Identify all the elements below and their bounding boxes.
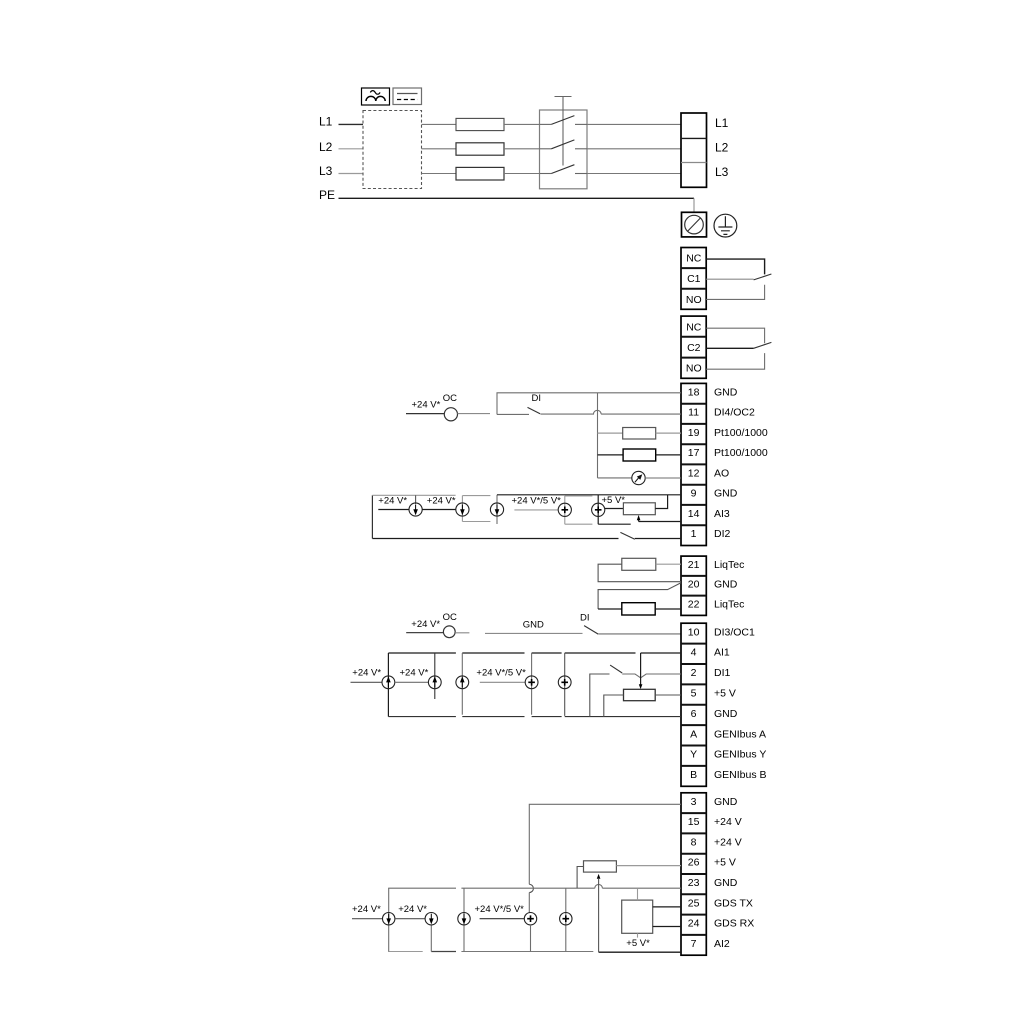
svg-text:AO: AO [714,467,729,479]
svg-text:18: 18 [688,386,700,398]
svg-text:NC: NC [686,253,702,265]
svg-text:NO: NO [686,363,702,375]
svg-text:AI2: AI2 [714,938,730,950]
svg-text:Pt100/1000: Pt100/1000 [714,427,768,439]
svg-text:LiqTec: LiqTec [714,599,744,611]
svg-text:+5 V*: +5 V* [602,495,626,506]
svg-text:12: 12 [688,467,700,479]
svg-text:AI1: AI1 [714,647,730,659]
svg-text:1: 1 [691,528,697,540]
svg-text:B: B [690,769,697,781]
svg-text:6: 6 [691,708,697,720]
svg-text:+24 V*: +24 V* [378,496,407,507]
svg-text:DI: DI [580,613,590,624]
svg-text:L3: L3 [715,165,729,179]
svg-text:OC: OC [443,393,457,404]
svg-text:GDS TX: GDS TX [714,897,753,909]
svg-text:L3: L3 [319,164,333,178]
svg-text:+5 V: +5 V [714,857,736,869]
svg-text:+24 V*/5 V*: +24 V*/5 V* [476,667,526,678]
svg-text:GND: GND [714,488,738,500]
svg-text:+24 V*: +24 V* [398,904,427,915]
svg-text:DI: DI [532,393,542,404]
svg-text:C1: C1 [687,273,701,285]
svg-text:GND: GND [714,708,738,720]
svg-text:14: 14 [688,508,700,520]
svg-text:OC: OC [443,612,457,623]
svg-text:Pt100/1000: Pt100/1000 [714,447,768,459]
svg-text:GENIbus Y: GENIbus Y [714,749,766,761]
svg-text:GND: GND [714,386,738,398]
svg-text:25: 25 [688,897,700,909]
svg-text:24: 24 [688,918,700,930]
svg-text:GND: GND [714,796,738,808]
svg-text:19: 19 [688,427,700,439]
svg-text:+24 V: +24 V [714,816,742,828]
svg-text:GDS RX: GDS RX [714,918,754,930]
svg-text:NO: NO [686,294,702,306]
svg-text:GENIbus B: GENIbus B [714,769,767,781]
svg-text:Y: Y [690,749,697,761]
svg-text:GND: GND [714,579,738,591]
svg-text:L1: L1 [319,115,333,129]
svg-text:C2: C2 [687,342,701,354]
svg-text:3: 3 [691,796,697,808]
svg-text:+24 V*: +24 V* [411,619,440,630]
svg-text:22: 22 [688,599,700,611]
svg-text:A: A [690,728,697,740]
svg-text:8: 8 [691,836,697,848]
svg-text:DI1: DI1 [714,667,731,679]
svg-text:NC: NC [686,321,702,333]
svg-text:15: 15 [688,816,700,828]
svg-text:PE: PE [319,188,335,202]
svg-text:GND: GND [714,877,738,889]
svg-text:2: 2 [691,667,697,679]
svg-text:5: 5 [691,688,697,700]
svg-text:17: 17 [688,447,700,459]
svg-text:+24 V*: +24 V* [427,496,456,507]
svg-text:+5 V: +5 V [714,688,736,700]
svg-text:GENIbus A: GENIbus A [714,728,766,740]
svg-text:+24 V*: +24 V* [400,667,429,678]
svg-text:4: 4 [691,647,697,659]
svg-text:10: 10 [688,626,700,638]
svg-text:+24 V*/5 V*: +24 V*/5 V* [475,904,525,915]
svg-text:+24 V*: +24 V* [412,400,441,411]
svg-text:+5 V*: +5 V* [626,938,650,949]
svg-text:DI4/OC2: DI4/OC2 [714,407,755,419]
svg-text:L2: L2 [715,141,729,155]
svg-text:7: 7 [691,938,697,950]
svg-text:+24 V: +24 V [714,836,742,848]
svg-text:23: 23 [688,877,700,889]
svg-text:+24 V*/5 V*: +24 V*/5 V* [512,496,562,507]
svg-text:9: 9 [691,488,697,500]
svg-text:GND: GND [523,620,544,631]
svg-text:+24 V*: +24 V* [352,667,381,678]
svg-text:DI2: DI2 [714,528,731,540]
svg-text:11: 11 [688,407,699,419]
svg-text:26: 26 [688,857,700,869]
svg-text:DI3/OC1: DI3/OC1 [714,626,755,638]
svg-text:AI3: AI3 [714,508,730,520]
svg-text:20: 20 [688,579,700,591]
svg-text:21: 21 [688,559,700,571]
svg-text:L2: L2 [319,140,333,154]
svg-text:+24 V*: +24 V* [352,904,381,915]
svg-text:LiqTec: LiqTec [714,559,744,571]
svg-text:L1: L1 [715,116,729,130]
